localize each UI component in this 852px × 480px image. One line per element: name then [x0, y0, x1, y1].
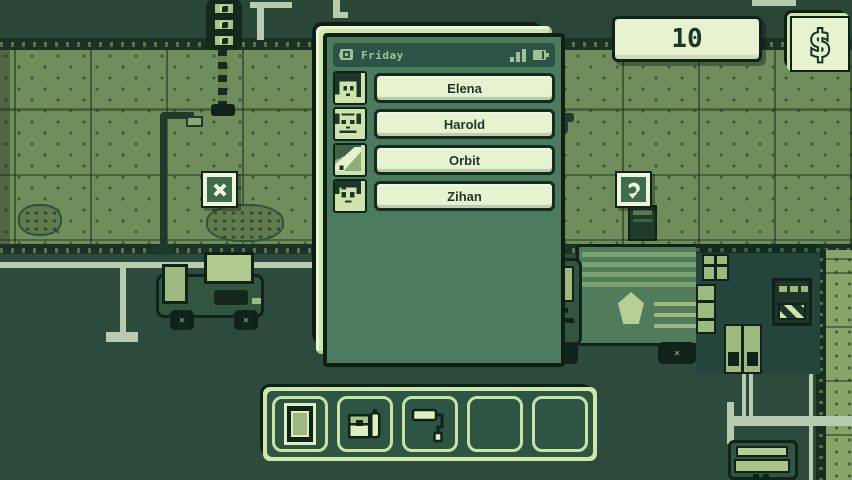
money-button[interactable]: $	[784, 10, 846, 68]
day-label: Friday	[361, 49, 404, 62]
traffic-light-lamp	[213, 18, 235, 31]
manhole-cover	[18, 204, 62, 236]
crate	[702, 254, 729, 281]
avatar-elena	[333, 71, 367, 105]
grab-marker[interactable]	[615, 171, 652, 208]
contact-button-elena[interactable]: Elena	[374, 73, 555, 103]
lane-marking	[742, 374, 746, 418]
x-marker-icon	[211, 181, 229, 199]
lane-marking	[727, 416, 852, 426]
signal-bars-icon	[510, 49, 527, 62]
contact-row: Orbit	[333, 145, 555, 175]
svg-text:$: $	[809, 24, 830, 64]
contact-button-orbit[interactable]: Orbit	[374, 145, 555, 175]
traffic-light-base	[211, 104, 235, 116]
vending-machine	[772, 278, 812, 326]
phone-panel: Friday	[312, 22, 542, 344]
traffic-light-housing	[206, 0, 242, 50]
lane-marking	[333, 12, 348, 18]
wheel: ✕	[170, 310, 194, 330]
toolbar-slot-satchel[interactable]	[337, 396, 393, 452]
hazard-stripes	[778, 303, 806, 320]
grass-strip	[826, 250, 852, 480]
paint-roller-icon	[411, 405, 449, 443]
zihan-portrait	[335, 181, 361, 207]
x-marker[interactable]	[201, 171, 238, 208]
toolbar-slot-tablet[interactable]	[272, 396, 328, 452]
pickup-truck: ✕ ✕	[152, 250, 272, 334]
delivery-truck: ✕ ✕	[540, 244, 722, 364]
elena-portrait	[335, 73, 361, 99]
dollar-icon: $	[805, 24, 835, 64]
toolbar-slot-empty[interactable]	[532, 396, 588, 452]
avatar-harold	[333, 107, 367, 141]
wheel: ✕	[658, 342, 696, 364]
money-value: 10	[671, 24, 702, 54]
game-viewport: ✕ ✕ ✕ ✕	[0, 0, 852, 480]
loading-dock	[696, 244, 820, 374]
manhole-cover	[206, 204, 284, 242]
contact-row: Harold	[333, 109, 555, 139]
avatar-zihan	[333, 179, 367, 213]
chat-icon	[339, 48, 355, 62]
money-display: 10	[612, 16, 762, 62]
satchel-icon	[347, 407, 383, 441]
lane-marking	[749, 374, 753, 418]
contact-row: Zihan	[333, 181, 555, 211]
avatar-orbit	[333, 143, 367, 177]
contact-button-zihan[interactable]: Zihan	[374, 181, 555, 211]
traffic-light-lamp	[213, 2, 235, 15]
sidewalk-edge-shadow	[0, 50, 10, 246]
orbit-portrait	[335, 145, 361, 171]
street-lamp-pole	[160, 118, 167, 250]
pallet	[696, 284, 716, 334]
big-crate	[724, 324, 762, 374]
battery-icon	[533, 49, 549, 61]
street-lamp-head	[186, 116, 203, 127]
item-toolbar	[260, 384, 592, 456]
harold-portrait	[335, 109, 361, 135]
traffic-light-pole	[218, 50, 227, 108]
dumpster	[628, 205, 657, 241]
tablet-icon	[284, 403, 316, 445]
wheel: ✕	[234, 310, 258, 330]
truck-front	[728, 440, 798, 480]
contact-button-harold[interactable]: Harold	[374, 109, 555, 139]
traffic-light-lamp	[213, 34, 235, 47]
lane-marking	[752, 0, 796, 6]
lane-marking	[106, 332, 138, 342]
grab-marker-icon	[624, 180, 644, 200]
lane-marking	[120, 268, 126, 334]
phone-status-bar: Friday	[333, 43, 555, 67]
contact-row: Elena	[333, 73, 555, 103]
toolbar-slot-empty[interactable]	[467, 396, 523, 452]
lane-marking	[257, 6, 264, 40]
toolbar-slot-paint-roller[interactable]	[402, 396, 458, 452]
